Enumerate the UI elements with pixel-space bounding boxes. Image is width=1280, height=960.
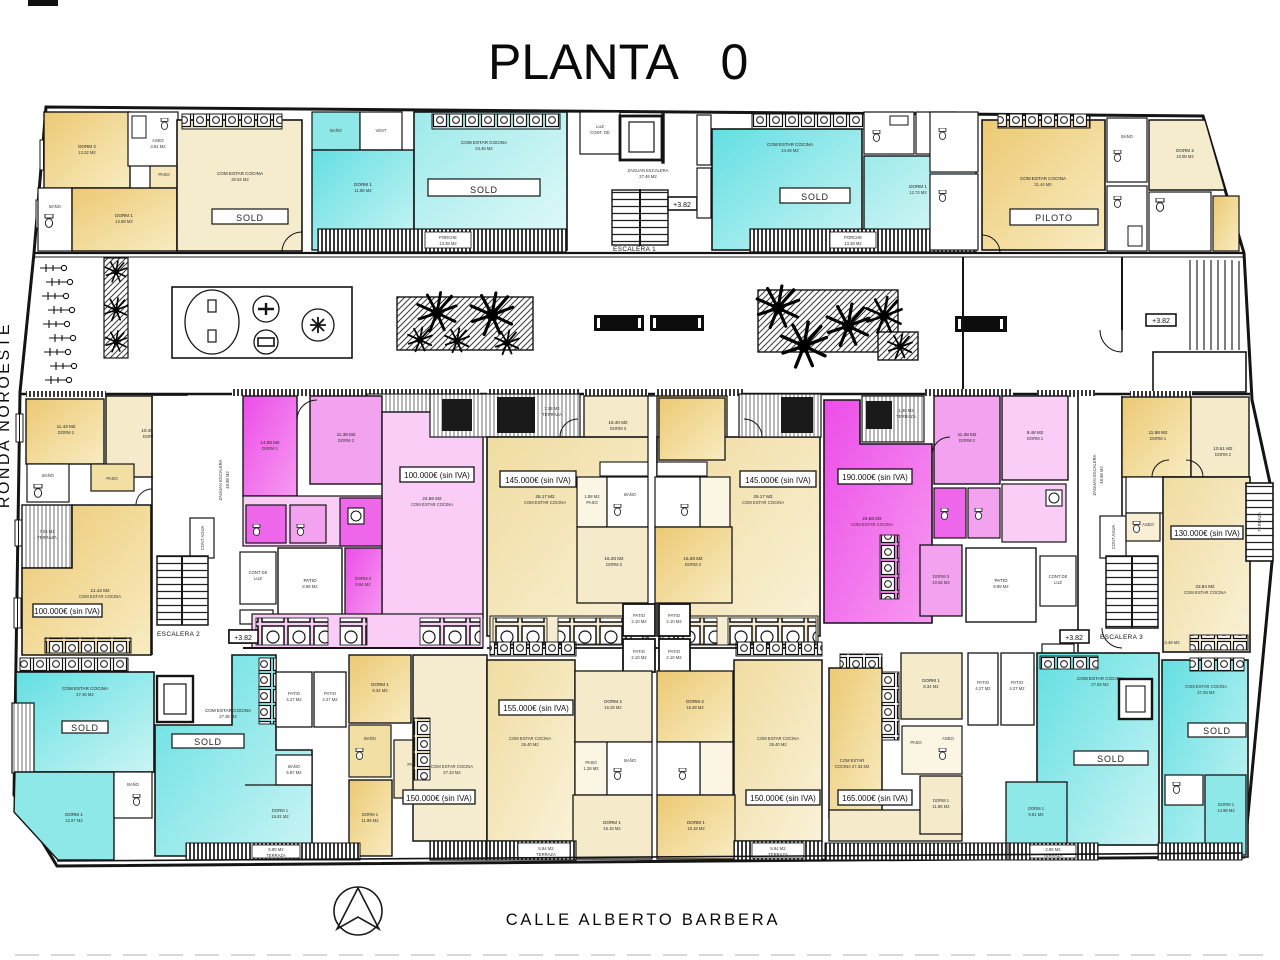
svg-text:9.81 M2: 9.81 M2 xyxy=(1028,812,1044,817)
svg-text:ZAGUAN ESCALERA: ZAGUAN ESCALERA xyxy=(1092,454,1097,495)
svg-text:DORM 1: DORM 1 xyxy=(272,808,289,813)
svg-text:SOLD: SOLD xyxy=(194,737,222,747)
svg-text:15.81 M2: 15.81 M2 xyxy=(271,814,289,819)
svg-text:16.18 M2: 16.18 M2 xyxy=(687,826,705,831)
svg-text:PATIO: PATIO xyxy=(668,649,681,654)
svg-text:150.000€ (sin IVA): 150.000€ (sin IVA) xyxy=(406,794,472,803)
svg-text:2.86 M2: 2.86 M2 xyxy=(1045,847,1061,852)
svg-text:BAÑO: BAÑO xyxy=(42,473,55,478)
svg-text:11.38 M2: 11.38 M2 xyxy=(337,432,356,437)
svg-text:PASO: PASO xyxy=(158,172,170,177)
svg-text:COM ESTAR COCINA: COM ESTAR COCINA xyxy=(461,140,508,145)
svg-text:12.67 M2: 12.67 M2 xyxy=(65,818,83,823)
svg-text:16.28 M2: 16.28 M2 xyxy=(604,556,624,561)
svg-text:PATIO: PATIO xyxy=(324,691,337,696)
svg-text:DORM 1: DORM 1 xyxy=(1027,436,1044,441)
svg-text:4.27 M2: 4.27 M2 xyxy=(322,697,338,702)
svg-text:COM ESTAR COCINA: COM ESTAR COCINA xyxy=(205,708,252,713)
svg-text:TERRAZA: TERRAZA xyxy=(542,412,562,417)
svg-text:2.10 M2: 2.10 M2 xyxy=(631,619,647,624)
svg-text:10.56 M2: 10.56 M2 xyxy=(932,580,950,585)
svg-text:24.66 M2: 24.66 M2 xyxy=(862,516,882,521)
svg-text:16.28 M2: 16.28 M2 xyxy=(604,705,622,710)
svg-text:DORM 2: DORM 2 xyxy=(1215,452,1232,457)
svg-text:PATIO: PATIO xyxy=(1011,680,1024,685)
svg-text:ZAGUAN ESCALERA: ZAGUAN ESCALERA xyxy=(628,168,669,173)
svg-text:CONT AGUA: CONT AGUA xyxy=(1111,525,1116,550)
svg-text:COM ESTAR COCINA: COM ESTAR COCINA xyxy=(1020,176,1067,181)
svg-text:27.33 M2: 27.33 M2 xyxy=(443,770,461,775)
svg-text:CALLE ALBERTO BARBERA: CALLE ALBERTO BARBERA xyxy=(506,911,781,929)
svg-text:VEST: VEST xyxy=(376,128,387,133)
svg-text:DORM 1: DORM 1 xyxy=(909,184,927,189)
svg-text:+3.82: +3.82 xyxy=(1152,318,1170,325)
svg-text:COM ESTAR COCINA: COM ESTAR COCINA xyxy=(509,736,551,741)
svg-text:COM ESTAR COCINA: COM ESTAR COCINA xyxy=(1185,684,1227,689)
svg-text:BAÑO: BAÑO xyxy=(330,128,343,133)
svg-text:145.000€ (sin IVA): 145.000€ (sin IVA) xyxy=(745,476,811,485)
svg-text:DORM 2: DORM 2 xyxy=(78,144,96,149)
svg-text:RONDA NOROESTE: RONDA NOROESTE xyxy=(0,322,13,508)
svg-text:COM ESTAR COCINA: COM ESTAR COCINA xyxy=(851,522,893,527)
svg-text:ASEO: ASEO xyxy=(152,138,164,143)
svg-text:TERRAZA: TERRAZA xyxy=(266,853,286,858)
svg-text:CONT. DE: CONT. DE xyxy=(590,130,610,135)
svg-text:SOLD: SOLD xyxy=(1203,726,1231,736)
svg-text:BAÑO: BAÑO xyxy=(49,204,62,209)
svg-text:SOLD: SOLD xyxy=(71,723,99,733)
svg-text:33.84 M2: 33.84 M2 xyxy=(1195,584,1215,589)
svg-text:1.88 M2: 1.88 M2 xyxy=(584,494,600,499)
svg-text:DORM 1: DORM 1 xyxy=(922,678,940,683)
svg-text:DORM 1: DORM 1 xyxy=(371,682,389,687)
svg-text:2.10 M2: 2.10 M2 xyxy=(666,619,682,624)
svg-text:16.40 M2: 16.40 M2 xyxy=(608,420,628,425)
svg-text:16.28 M2: 16.28 M2 xyxy=(683,556,703,561)
svg-text:7.04 M2: 7.04 M2 xyxy=(39,529,55,534)
svg-text:COM ESTAR COCINA: COM ESTAR COCINA xyxy=(217,171,264,176)
svg-text:100.000€ (sin IVA): 100.000€ (sin IVA) xyxy=(404,471,470,480)
svg-text:PATIO: PATIO xyxy=(668,613,681,618)
svg-text:COM ESTAR COCINA: COM ESTAR COCINA xyxy=(1184,590,1226,595)
svg-text:24.46 M2: 24.46 M2 xyxy=(781,148,799,153)
svg-text:27.46 M2: 27.46 M2 xyxy=(639,174,657,179)
svg-text:8.98 M2: 8.98 M2 xyxy=(993,584,1009,589)
svg-text:COM ESTAR COCINA: COM ESTAR COCINA xyxy=(742,500,784,505)
svg-text:48.98 M2: 48.98 M2 xyxy=(225,471,230,489)
svg-text:130.000€ (sin IVA): 130.000€ (sin IVA) xyxy=(1174,529,1240,538)
svg-text:PATIO: PATIO xyxy=(633,613,646,618)
svg-text:24.66 M2: 24.66 M2 xyxy=(422,496,442,501)
svg-text:26.17 M2: 26.17 M2 xyxy=(753,494,773,499)
svg-text:COM ESTAR COCINA: COM ESTAR COCINA xyxy=(757,736,799,741)
svg-text:COM ESTAR COCINA: COM ESTAR COCINA xyxy=(79,594,121,599)
svg-text:2.10 M2: 2.10 M2 xyxy=(631,655,647,660)
svg-text:BAÑO: BAÑO xyxy=(127,782,140,787)
svg-text:DORM 2: DORM 2 xyxy=(1176,148,1194,153)
svg-text:4.27 M2: 4.27 M2 xyxy=(975,686,991,691)
svg-text:+3.82: +3.82 xyxy=(1065,635,1083,642)
svg-text:5.87 M2: 5.87 M2 xyxy=(286,770,302,775)
svg-text:DORM 2: DORM 2 xyxy=(959,438,976,443)
svg-text:DORM 2: DORM 2 xyxy=(58,430,75,435)
svg-text:30.94 M2: 30.94 M2 xyxy=(231,177,249,182)
svg-text:DORM 2: DORM 2 xyxy=(686,699,704,704)
svg-text:DORM 1: DORM 1 xyxy=(65,812,83,817)
svg-text:11.88 M2: 11.88 M2 xyxy=(354,188,372,193)
svg-text:ZAGUAN ESCALERA: ZAGUAN ESCALERA xyxy=(218,459,223,500)
svg-text:PORCHE: PORCHE xyxy=(844,235,862,240)
svg-text:CONT DE: CONT DE xyxy=(1049,574,1068,579)
svg-text:8.34 M2: 8.34 M2 xyxy=(372,688,388,693)
svg-text:BAÑO: BAÑO xyxy=(364,736,377,741)
svg-text:31.44 M2: 31.44 M2 xyxy=(1034,182,1052,187)
svg-text:DORM 1: DORM 1 xyxy=(354,182,372,187)
svg-text:TERRAZA: TERRAZA xyxy=(896,414,916,419)
svg-text:ASEO: ASEO xyxy=(1142,522,1154,527)
svg-text:16.18 M2: 16.18 M2 xyxy=(603,826,621,831)
svg-text:BAÑO: BAÑO xyxy=(624,492,637,497)
svg-text:SOLD: SOLD xyxy=(470,185,498,195)
svg-text:COM ESTAR COCINA: COM ESTAR COCINA xyxy=(524,500,566,505)
svg-text:PLANTA 0: PLANTA 0 xyxy=(488,34,748,90)
svg-text:LUZ: LUZ xyxy=(254,576,262,581)
svg-text:DORM 3: DORM 3 xyxy=(355,576,372,581)
svg-text:BAÑO: BAÑO xyxy=(1121,134,1134,139)
svg-text:11.43 M2: 11.43 M2 xyxy=(57,424,76,429)
svg-text:COM ESTAR COCINA: COM ESTAR COCINA xyxy=(1077,676,1124,681)
svg-text:SOLD: SOLD xyxy=(801,192,829,202)
svg-text:TERRAZA: TERRAZA xyxy=(1257,512,1262,532)
svg-text:ESCALERA 2: ESCALERA 2 xyxy=(157,631,200,638)
svg-text:10.51 M2: 10.51 M2 xyxy=(1213,446,1233,451)
svg-text:27.38 M2: 27.38 M2 xyxy=(219,714,237,719)
svg-text:DORM 1: DORM 1 xyxy=(933,798,950,803)
svg-text:DORM 2: DORM 2 xyxy=(338,438,355,443)
svg-text:1.28 M2: 1.28 M2 xyxy=(583,766,599,771)
svg-text:11.98 M2: 11.98 M2 xyxy=(932,804,950,809)
svg-text:DORM 3: DORM 3 xyxy=(610,426,627,431)
svg-text:PASO: PASO xyxy=(910,740,922,745)
svg-text:+3.82: +3.82 xyxy=(234,635,252,642)
svg-text:DORM 1: DORM 1 xyxy=(1218,802,1235,807)
svg-text:27.93 M2: 27.93 M2 xyxy=(1197,690,1215,695)
svg-text:PATIO: PATIO xyxy=(288,691,301,696)
svg-text:8.98 M2: 8.98 M2 xyxy=(302,584,318,589)
svg-text:14.98 M2: 14.98 M2 xyxy=(1217,808,1235,813)
svg-text:1.38 M2: 1.38 M2 xyxy=(898,408,914,413)
svg-text:100.000€ (sin IVA): 100.000€ (sin IVA) xyxy=(34,607,100,616)
svg-text:145.000€ (sin IVA): 145.000€ (sin IVA) xyxy=(505,476,571,485)
svg-text:SOLD: SOLD xyxy=(236,213,264,223)
svg-text:8.84 M2: 8.84 M2 xyxy=(355,582,371,587)
svg-text:COCINA 27.33 M2: COCINA 27.33 M2 xyxy=(835,764,870,769)
svg-text:DORM 2: DORM 2 xyxy=(685,562,702,567)
svg-text:4.27 M2: 4.27 M2 xyxy=(1009,686,1025,691)
svg-text:13.22 M2: 13.22 M2 xyxy=(78,150,96,155)
svg-text:155.000€ (sin IVA): 155.000€ (sin IVA) xyxy=(503,704,569,713)
svg-text:12.74 M2: 12.74 M2 xyxy=(909,190,927,195)
svg-text:ASEO: ASEO xyxy=(942,736,954,741)
svg-text:26.17 M2: 26.17 M2 xyxy=(535,494,555,499)
svg-text:165.000€ (sin IVA): 165.000€ (sin IVA) xyxy=(842,794,908,803)
svg-text:8.34 M2: 8.34 M2 xyxy=(923,684,939,689)
svg-text:SOLD: SOLD xyxy=(1097,754,1125,764)
svg-text:CONT AGUA: CONT AGUA xyxy=(200,526,205,551)
svg-text:7.38 M2: 7.38 M2 xyxy=(544,406,560,411)
svg-text:COM ESTAR COCINA: COM ESTAR COCINA xyxy=(62,686,109,691)
svg-text:PATIO: PATIO xyxy=(303,578,317,583)
svg-text:11.88 M2: 11.88 M2 xyxy=(1149,430,1168,435)
svg-text:TERRAZA: TERRAZA xyxy=(37,535,57,540)
svg-text:DORM 3: DORM 3 xyxy=(933,574,950,579)
svg-text:PATIO: PATIO xyxy=(977,680,990,685)
svg-text:27.46 M2: 27.46 M2 xyxy=(76,692,94,697)
svg-text:13.28 M2: 13.28 M2 xyxy=(844,241,862,246)
svg-text:10.98 M2: 10.98 M2 xyxy=(1176,154,1194,159)
svg-text:5.94 M2: 5.94 M2 xyxy=(770,846,786,851)
svg-text:PASO: PASO xyxy=(586,500,598,505)
svg-text:14.06 M2: 14.06 M2 xyxy=(260,440,280,445)
svg-text:COM ESTAR: COM ESTAR xyxy=(840,758,865,763)
svg-text:2.10 M2: 2.10 M2 xyxy=(666,655,682,660)
svg-text:LUZ: LUZ xyxy=(1054,580,1062,585)
svg-text:24.46 M2: 24.46 M2 xyxy=(475,146,493,151)
svg-text:11.98 M2: 11.98 M2 xyxy=(361,818,379,823)
svg-text:DORM 1: DORM 1 xyxy=(262,446,279,451)
svg-text:3.48 M2: 3.48 M2 xyxy=(1164,640,1180,645)
svg-text:PILOTO: PILOTO xyxy=(1035,213,1073,223)
svg-text:12.88 M2: 12.88 M2 xyxy=(115,219,133,224)
svg-text:LUZ: LUZ xyxy=(596,124,604,129)
svg-text:PATIO: PATIO xyxy=(633,649,646,654)
svg-text:DORM 1: DORM 1 xyxy=(1150,436,1167,441)
svg-text:DORM 1: DORM 1 xyxy=(603,820,621,825)
svg-text:16.28 M2: 16.28 M2 xyxy=(686,705,704,710)
svg-text:DORM 1: DORM 1 xyxy=(115,213,133,218)
svg-text:DORM 1: DORM 1 xyxy=(687,820,705,825)
svg-text:COM ESTAR COCINA: COM ESTAR COCINA xyxy=(431,764,473,769)
svg-text:5.94 M2: 5.94 M2 xyxy=(538,846,554,851)
svg-text:27.93 M2: 27.93 M2 xyxy=(1091,682,1109,687)
svg-text:13.28 M2: 13.28 M2 xyxy=(439,241,457,246)
svg-text:TERRAZA: TERRAZA xyxy=(536,852,556,857)
svg-text:9.48 M2: 9.48 M2 xyxy=(1027,430,1044,435)
svg-text:PATIO: PATIO xyxy=(994,578,1008,583)
svg-text:PORCHE: PORCHE xyxy=(439,235,457,240)
svg-text:COM ESTAR COCINA: COM ESTAR COCINA xyxy=(411,502,453,507)
svg-text:PASO: PASO xyxy=(106,476,118,481)
svg-text:DORM 1: DORM 1 xyxy=(362,812,379,817)
svg-text:26.40 M2: 26.40 M2 xyxy=(769,742,787,747)
svg-text:190.000€ (sin IVA): 190.000€ (sin IVA) xyxy=(842,473,908,482)
svg-text:11.38 M2: 11.38 M2 xyxy=(958,432,977,437)
svg-text:+3.82: +3.82 xyxy=(673,202,691,209)
svg-text:BAÑO: BAÑO xyxy=(624,758,637,763)
svg-text:BAÑO: BAÑO xyxy=(288,764,301,769)
svg-text:4.27 M2: 4.27 M2 xyxy=(286,697,302,702)
svg-text:DORM 1: DORM 1 xyxy=(1028,806,1045,811)
svg-text:48.98 M2: 48.98 M2 xyxy=(1099,466,1104,484)
svg-text:COM ESTAR COCINA: COM ESTAR COCINA xyxy=(767,142,814,147)
svg-text:150.000€ (sin IVA): 150.000€ (sin IVA) xyxy=(750,794,816,803)
svg-text:DORM 2: DORM 2 xyxy=(606,562,623,567)
svg-text:DORM 2: DORM 2 xyxy=(604,699,622,704)
svg-text:PASO: PASO xyxy=(585,760,597,765)
svg-text:CONT DE: CONT DE xyxy=(249,570,268,575)
svg-text:3.81 M2: 3.81 M2 xyxy=(150,144,166,149)
svg-text:26.40 M2: 26.40 M2 xyxy=(521,742,539,747)
svg-text:5.90 M2: 5.90 M2 xyxy=(268,847,284,852)
svg-text:21.42 M2: 21.42 M2 xyxy=(90,588,110,593)
